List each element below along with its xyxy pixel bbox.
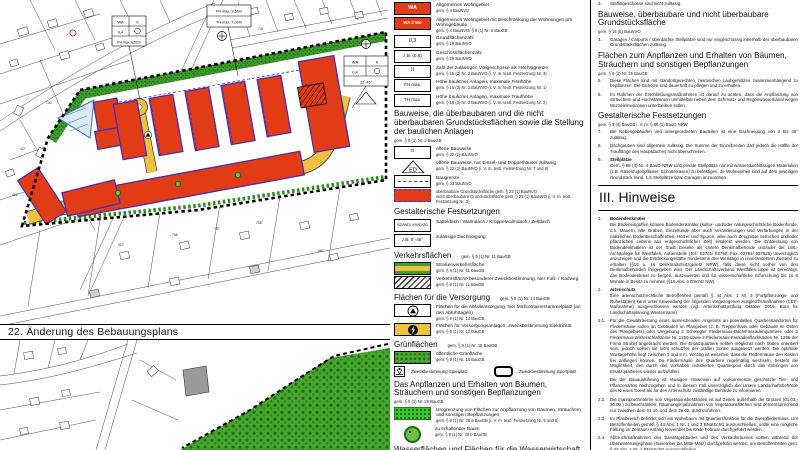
legend-item-vollgeschosse: II Zahl der zulässigen Vollgeschosse als… <box>394 65 587 78</box>
svg-text:741: 741 <box>258 27 264 31</box>
svg-text:WA: WA <box>117 20 124 25</box>
svg-text:758: 758 <box>256 221 262 225</box>
hinweis-2: 2. ArtenschutzEine artenschutzrechtliche… <box>598 287 798 316</box>
legend-item-dachneigung: z.B. 0°-45° zulässige Dachneigung <box>394 234 587 247</box>
grz-symbol: 0,3 <box>394 35 431 48</box>
existing-building-hatched <box>297 83 326 108</box>
vollgeschosse-symbol: II <box>394 65 431 78</box>
svg-text:TH max. 7,00m: TH max. 7,00m <box>216 21 242 25</box>
plan-map: 427 462 740 412 756 757 758 887 741 <box>0 0 390 324</box>
legend-item-spiel-sport: Zweckbestimmung Spielplatz Zweckbestimmu… <box>394 366 587 377</box>
strassenverkehr-symbol <box>394 262 431 275</box>
legend-heading-verkehr: Verkehrsflächengem. § 9 (1) Nr. 11 BauGB <box>394 251 587 260</box>
festsetzung-5: 5.Diese Flächen sind mit standortgerecht… <box>598 78 798 89</box>
dachneigung-symbol: z.B. 0°-45° <box>394 234 431 247</box>
hinweis-artenschutz-absatz: Bei der Bauausführung ist etwaigen Hinwe… <box>598 377 798 394</box>
festsetzung-3: 3.Staffelgeschosse sind nicht zulässig. <box>598 1 798 7</box>
legend-item-ueberbaubar: überbaubare Grundstücksfläche gem. § 23 … <box>394 189 587 204</box>
abfallentsorgung-icon <box>394 304 431 317</box>
heading-bauweise: Bauweise, überbaubare und nicht überbaub… <box>598 11 798 29</box>
legend-item-baugrenze: Baugrenzegem. § 23 BauNVO <box>394 175 587 188</box>
amendment-map <box>0 340 390 450</box>
svg-text:887: 887 <box>318 249 324 253</box>
festsetzung-7: 7.Bei Nebengebäuden und untergeordneten … <box>598 129 798 140</box>
hinweis-2-4: 2.4.Abbruchmaßnahmen des Sanitärgebäudes… <box>598 435 798 450</box>
fussradweg-symbol <box>394 276 431 289</box>
heading-anpflanzen: Flächen zum Anpflanzen und Erhalten von … <box>598 52 798 70</box>
svg-text:0,4: 0,4 <box>352 70 358 75</box>
festsetzung-6: 6.Im Rahmen der Erschließungsmaßnahmen i… <box>598 92 798 109</box>
waste-collection-symbol <box>145 132 152 139</box>
legend-item-dachform: SD/WD/ KWD/ZD Satteldach / Walmdach / Kr… <box>394 219 587 232</box>
plan-map-column: 427 462 740 412 756 757 758 887 741 <box>0 0 390 450</box>
legend-column: WA Allgemeines Wohngebietgem. § 4 BauNVO… <box>390 0 590 450</box>
legend-heading-anpflanzen: Das Anpflanzen und Erhalten von Bäumen, … <box>394 381 587 399</box>
ueberbaubar-symbol <box>394 189 431 202</box>
legend-item-ed: ED offene Bauweise, nur Einzel- und Dopp… <box>394 160 587 173</box>
legend-item-gfz: z.B. (0,6) Geschossflächenzahlgem. § 19 … <box>394 50 587 63</box>
svg-text:427: 427 <box>20 147 26 151</box>
svg-text:0,4: 0,4 <box>118 30 124 35</box>
spielplatz-icon <box>394 366 405 377</box>
public-green-area <box>180 348 390 450</box>
legend-item-baum: zu erhaltender Baumgem. § 9 (1) Nr. 25 b… <box>394 426 587 443</box>
text-regulations-column: 3.Staffelgeschosse sind nicht zulässig. … <box>591 0 800 450</box>
svg-text:WA: WA <box>352 60 359 65</box>
plan-area <box>18 32 386 226</box>
wa-symbol: WA <box>394 2 431 15</box>
heading-gestalterisch: Gestalterische Festsetzungen <box>598 112 798 121</box>
legend-heading-gruen: Grünflächengem. § 9 (1) Nr. 15 BauGB <box>394 340 587 349</box>
legend-item-wa: WA Allgemeines Wohngebietgem. § 4 BauNVO <box>394 2 587 15</box>
elektrizitaet-icon <box>394 323 431 336</box>
legend-item-wa2: WA 2 Wo Allgemeines Wohngebiet mit Besch… <box>394 17 587 34</box>
gruenflaeche-symbol <box>394 351 431 364</box>
festsetzung-8: 8.Dachgauben sind allgemein zulässig. Di… <box>598 143 798 154</box>
dachform-symbol: SD/WD/ KWD/ZD <box>394 219 431 232</box>
festsetzung-4: 4.Garagen / Carports / überdachte Stellp… <box>598 37 798 48</box>
svg-text:II: II <box>136 20 138 25</box>
legend-item-anpflanzung: Umgrenzung von Flächen zur Anpflanzung v… <box>394 407 587 424</box>
festsetzung-9: 9. StellplätzeGem. § 86 (4) Nr. 4 BauO N… <box>598 157 798 180</box>
legend-item-grz: 0,3 Grundflächenzahlgem. § 19 BauNVO <box>394 35 587 48</box>
hinweise-section-title: III. Hinweise <box>598 185 798 211</box>
legend-item-radweg: Verkehrsfläche besonderer Zweckbestimmun… <box>394 276 587 289</box>
ed-triangle-icon: ED <box>394 160 431 173</box>
anpflanzung-symbol <box>394 407 431 420</box>
baugrenze-symbol <box>394 175 431 188</box>
legend-item-strasse: Straßenverkehrsflächegem. § 9 (1) Nr. 11… <box>394 262 587 275</box>
svg-text:FH max. 9,50m: FH max. 9,50m <box>216 10 242 14</box>
svg-text:FH max. 9,50m: FH max. 9,50m <box>117 41 140 45</box>
legend-heading-bauweise: Bauweise, die überbaubaren und die nicht… <box>394 110 587 137</box>
offene-bauweise-symbol: o <box>394 146 431 159</box>
legend-item-firsthoehe: FH max. Höhe baulicher Anlagen, maximale… <box>394 79 587 92</box>
legend-heading-wasser: Wasserflächen und Flächen für die Wasser… <box>394 446 587 450</box>
svg-text:462: 462 <box>12 193 18 197</box>
bebauungsplan-sheet: 427 462 740 412 756 757 758 887 741 <box>0 0 800 450</box>
legend-item-elektro: Flächen für Versorgungsanlagen, Zweckbes… <box>394 323 587 336</box>
hinweis-2-3: 2.3.Im Planbereich befindet sich ein Woh… <box>598 416 798 433</box>
legend-item-abfall: Flächen für die Abfallentsorgung, hier M… <box>394 304 587 321</box>
svg-text:22°-45°: 22°-45° <box>360 81 372 85</box>
legend-item-gruenflaeche: öffentliche Grünflächegem. § 9 (1) Nr. 1… <box>394 351 587 364</box>
legend-item-traufhoehe: TH max. Höhe baulicher Anlagen, maximale… <box>394 94 587 107</box>
existing-gray-building <box>183 366 209 396</box>
hinweis-1: 1. BodendenkmälerBei Bodeneingriffen kön… <box>598 216 798 284</box>
survey-marker <box>70 30 76 36</box>
section-divider: 22. Änderung des Bebauungsplans <box>0 324 390 340</box>
legend-heading-versorgung: Flächen für die Versorgunggem. § 9 (1) N… <box>394 293 587 302</box>
legend-heading-gestalterisch: Gestalterische Festsetzungen <box>394 208 587 217</box>
hinweis-2-2: 2.2.Die Inanspruchnahme von Vegetationsb… <box>598 397 798 414</box>
sportplatz-icon <box>494 366 513 377</box>
svg-text:ED: ED <box>409 167 417 173</box>
svg-text:740: 740 <box>46 101 52 105</box>
svg-text:757: 757 <box>214 227 220 231</box>
legend-item-offene-bauweise: o offene Bauweisegem. § 22 (2) BauNVO <box>394 146 587 159</box>
hinweis-2-1: 2.1.Für die Gewährleistung eines ausreic… <box>598 318 798 374</box>
wa2-symbol: WA 2 Wo <box>394 17 431 30</box>
svg-text:II: II <box>376 60 378 65</box>
th-symbol: TH max. <box>394 94 431 107</box>
svg-text:756: 756 <box>172 233 178 237</box>
plan-change-title: 22. Änderung des Bebauungsplans <box>0 326 178 338</box>
baum-icon <box>404 426 421 443</box>
svg-text:412: 412 <box>118 243 124 247</box>
fh-symbol: FH max. <box>394 79 431 92</box>
gfz-symbol: z.B. (0,6) <box>394 50 431 63</box>
